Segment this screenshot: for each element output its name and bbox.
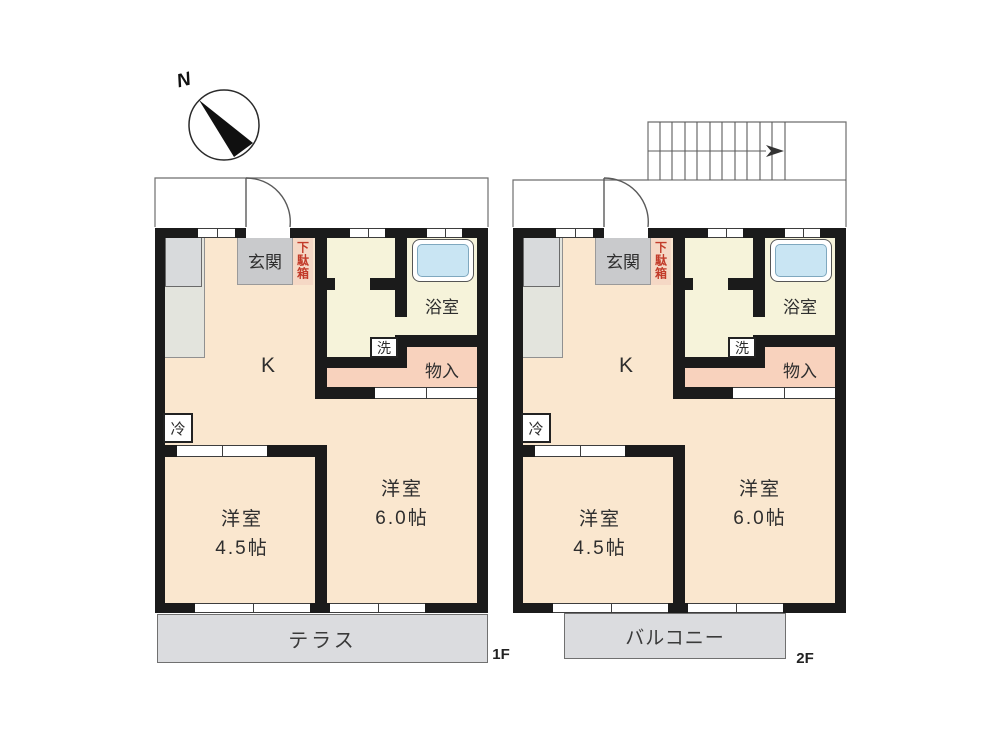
wall-segment	[513, 445, 535, 457]
porch-outline-2f	[513, 122, 846, 227]
wall-segment	[155, 445, 177, 457]
fridge-box: 冷	[521, 413, 551, 443]
floorplan-linework	[0, 0, 1000, 750]
entrance-label: 玄関	[237, 235, 293, 285]
compass-icon	[189, 90, 259, 160]
bathroom-label: 浴室	[765, 290, 835, 320]
stairs-direction-arrow	[766, 145, 784, 157]
room-sliding-door	[535, 445, 625, 457]
shoe-cabinet-label: 下駄箱	[293, 235, 313, 285]
staircase-icon	[648, 122, 846, 180]
entrance-door-swing	[246, 178, 290, 227]
fridge-label: 冷	[170, 418, 185, 439]
wall-segment	[155, 603, 195, 613]
wall-segment	[683, 387, 733, 399]
wall-segment	[765, 335, 835, 347]
sliding-glass-door	[330, 603, 425, 613]
wall-segment	[325, 387, 375, 399]
wall-segment	[835, 228, 846, 613]
room-name-text: 洋室	[221, 505, 263, 534]
wall-segment	[625, 445, 685, 457]
storage-label: 物入	[765, 354, 835, 384]
room-small-label: 洋室 4.5帖	[167, 503, 317, 565]
unit-2f: 冷 洗 玄関 下駄箱 浴室 物入 K 洋室 4.5帖 洋室 6.0帖	[513, 228, 846, 613]
washstand-label: 洗	[377, 338, 391, 358]
room-size-text: 4.5帖	[215, 534, 268, 563]
kitchen-window	[198, 228, 235, 238]
wall-segment	[682, 357, 765, 368]
wall-segment	[395, 235, 407, 317]
fridge-box: 冷	[163, 413, 193, 443]
washstand-box: 洗	[728, 337, 756, 358]
bathroom-window	[785, 228, 820, 238]
wall-segment	[407, 335, 477, 347]
wall-segment	[324, 357, 407, 368]
wall-segment	[673, 228, 685, 399]
balcony-area: バルコニー	[564, 613, 786, 659]
kitchen-label: K	[596, 352, 656, 380]
bathroom-window	[427, 228, 462, 238]
sliding-glass-door	[688, 603, 783, 613]
room-large-label: 洋室 6.0帖	[327, 473, 477, 535]
sliding-glass-door	[195, 603, 310, 613]
room-large-label: 洋室 6.0帖	[685, 473, 835, 535]
stove-block	[165, 237, 202, 287]
fridge-label: 冷	[528, 418, 543, 439]
room-size-text: 6.0帖	[375, 504, 428, 533]
terrace-area: テラス	[157, 614, 488, 663]
room-name-text: 洋室	[739, 475, 781, 504]
bathroom-label: 浴室	[407, 290, 477, 320]
balcony-label: バルコニー	[625, 623, 725, 650]
kitchen-label: K	[238, 352, 298, 380]
toilet-window	[708, 228, 743, 238]
wall-segment	[783, 603, 846, 613]
room-size-text: 6.0帖	[733, 504, 786, 533]
stove-block	[523, 237, 560, 287]
washstand-label: 洗	[735, 338, 749, 358]
entrance-label: 玄関	[595, 235, 651, 285]
wall-segment	[477, 228, 488, 613]
shoe-cabinet-label: 下駄箱	[651, 235, 671, 285]
wall-segment	[425, 603, 488, 613]
closet-sliding-door	[375, 387, 477, 399]
room-name-text: 洋室	[579, 505, 621, 534]
bathtub-basin	[417, 244, 469, 277]
storage-label: 物入	[407, 354, 477, 384]
floor-tag-1f: 1F	[487, 645, 515, 663]
wall-segment	[267, 445, 327, 457]
bathtub-basin	[775, 244, 827, 277]
kitchen-window	[556, 228, 593, 238]
wall-segment	[753, 235, 765, 317]
sliding-glass-door	[553, 603, 668, 613]
wall-segment	[513, 603, 553, 613]
room-small-label: 洋室 4.5帖	[525, 503, 675, 565]
room-size-text: 4.5帖	[573, 534, 626, 563]
closet-sliding-door	[733, 387, 835, 399]
room-sliding-door	[177, 445, 267, 457]
washstand-box: 洗	[370, 337, 398, 358]
floor-tag-2f: 2F	[791, 649, 819, 667]
compass-north-label: N	[165, 63, 203, 100]
wall-segment	[673, 278, 693, 290]
wall-segment	[315, 278, 335, 290]
toilet-window	[350, 228, 385, 238]
porch-outline-1f	[155, 178, 488, 227]
floorplan-canvas: N	[0, 0, 1000, 750]
terrace-label: テラス	[288, 624, 357, 653]
room-name-text: 洋室	[381, 475, 423, 504]
entrance-door-swing	[604, 178, 648, 227]
unit-1f: 冷 洗 玄関 下駄箱 浴室 物入 K 洋室 4.5帖 洋室 6.0帖	[155, 228, 488, 613]
wall-segment	[315, 228, 327, 399]
